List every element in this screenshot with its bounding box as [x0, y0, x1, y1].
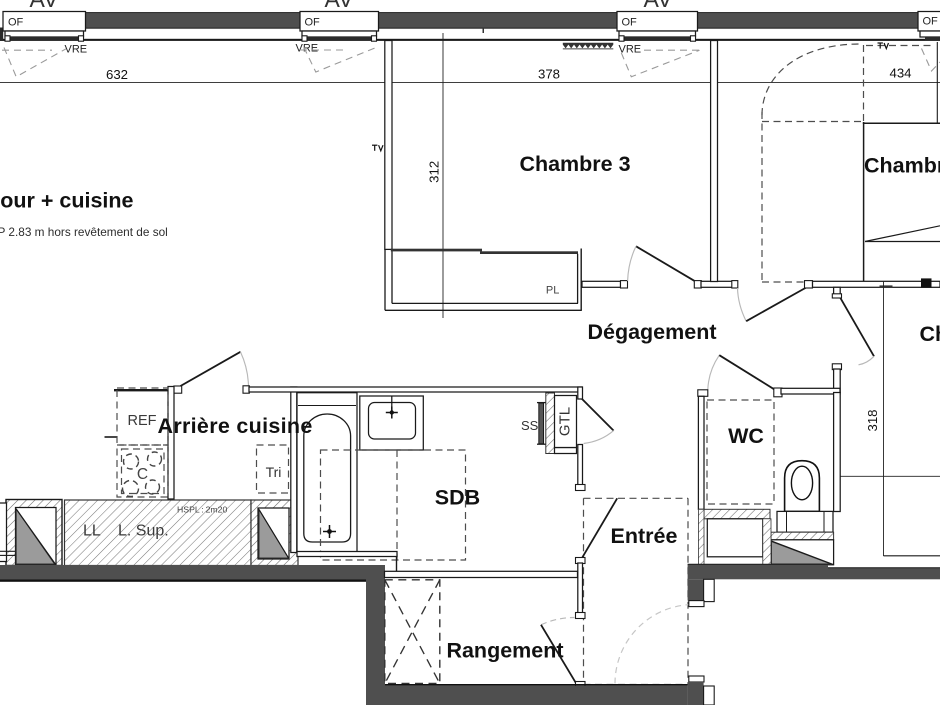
- svg-text:SS: SS: [521, 418, 539, 433]
- svg-text:Arrière cuisine: Arrière cuisine: [158, 414, 313, 438]
- svg-text:OF: OF: [622, 16, 638, 28]
- svg-text:AV: AV: [644, 0, 674, 12]
- svg-text:LL: LL: [83, 523, 101, 540]
- svg-text:WC: WC: [728, 424, 764, 448]
- svg-text:Tri: Tri: [266, 464, 282, 480]
- svg-text:L. Sup.: L. Sup.: [118, 523, 169, 540]
- svg-text:Cha: Cha: [920, 322, 940, 346]
- svg-text:Entrée: Entrée: [611, 524, 678, 548]
- svg-text:AV: AV: [30, 0, 60, 12]
- svg-text:312: 312: [426, 161, 441, 183]
- svg-text:P 2.83 m hors revêtement de so: P 2.83 m hors revêtement de sol: [0, 225, 168, 239]
- svg-text:Dégagement: Dégagement: [587, 320, 716, 344]
- svg-text:OF: OF: [305, 16, 321, 28]
- svg-text:HSPL : 2m20: HSPL : 2m20: [177, 505, 227, 515]
- svg-text:VRE: VRE: [65, 44, 88, 56]
- svg-text:Séjour + cuisine: Séjour + cuisine: [0, 189, 134, 213]
- svg-text:C: C: [137, 466, 148, 483]
- svg-text:632: 632: [106, 67, 128, 82]
- svg-text:AV: AV: [325, 0, 355, 12]
- svg-text:318: 318: [865, 409, 880, 431]
- svg-text:Chambre 2: Chambre 2: [864, 154, 940, 178]
- svg-text:378: 378: [538, 67, 560, 82]
- svg-text:SDB: SDB: [435, 486, 480, 510]
- svg-text:434: 434: [889, 66, 911, 81]
- svg-text:REF: REF: [128, 413, 157, 429]
- svg-text:GTL: GTL: [556, 407, 573, 436]
- svg-text:Rangement: Rangement: [446, 639, 563, 663]
- svg-text:OF: OF: [923, 16, 939, 28]
- svg-text:Chambre 3: Chambre 3: [519, 152, 630, 176]
- svg-text:PL: PL: [546, 285, 559, 297]
- svg-text:OF: OF: [8, 16, 24, 28]
